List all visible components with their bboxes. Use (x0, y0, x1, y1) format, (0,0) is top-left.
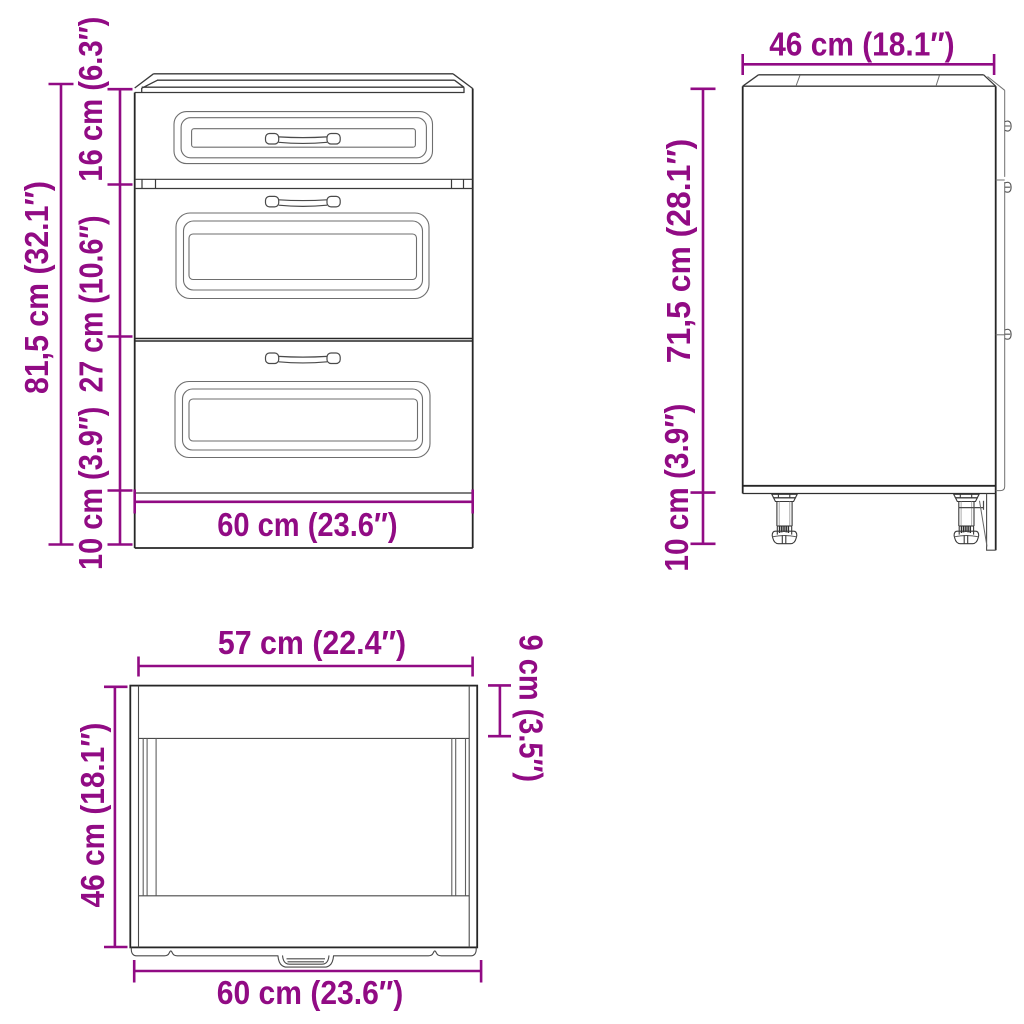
svg-text:71,5 cm (28.1″): 71,5 cm (28.1″) (660, 139, 697, 363)
svg-text:10 cm (3.9″): 10 cm (3.9″) (72, 407, 109, 570)
svg-text:46 cm (18.1″): 46 cm (18.1″) (769, 26, 954, 63)
svg-text:60 cm (23.6″): 60 cm (23.6″) (217, 974, 404, 1011)
svg-text:10 cm (3.9″): 10 cm (3.9″) (658, 404, 695, 572)
svg-text:46 cm (18.1″): 46 cm (18.1″) (74, 723, 111, 908)
svg-text:16 cm (6.3″): 16 cm (6.3″) (72, 17, 109, 182)
svg-text:81,5 cm (32.1″): 81,5 cm (32.1″) (18, 181, 55, 394)
svg-text:27 cm (10.6″): 27 cm (10.6″) (73, 216, 110, 393)
svg-text:60 cm (23.6″): 60 cm (23.6″) (217, 506, 397, 543)
svg-text:9 cm (3.5″): 9 cm (3.5″) (513, 635, 550, 782)
svg-text:57 cm (22.4″): 57 cm (22.4″) (218, 624, 406, 661)
